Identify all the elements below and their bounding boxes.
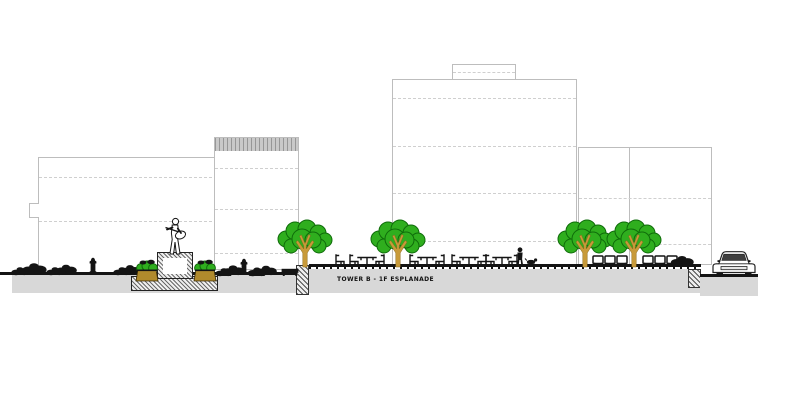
tree: [558, 220, 612, 267]
statue-guitarist: [166, 218, 187, 254]
cafe-chair: [486, 255, 494, 266]
dog: [525, 258, 537, 266]
cube-seat: [617, 256, 627, 266]
cafe-chair: [376, 255, 384, 266]
shrub: [56, 265, 77, 274]
cafe-table: [493, 258, 511, 267]
entourage-layer: [0, 0, 800, 414]
fire-hydrant-icon: [89, 258, 97, 274]
fire-hydrant-icon: [240, 259, 248, 275]
tree: [278, 220, 332, 267]
cafe-chair: [478, 255, 486, 266]
cube-seat: [643, 256, 653, 266]
parked-car: [713, 252, 755, 277]
planter: [194, 260, 216, 281]
cafe-chair: [452, 255, 460, 266]
shrub: [22, 263, 47, 274]
shrub: [256, 266, 277, 275]
elevation-drawing: TOWER B - 1F ESPLANADE: [0, 0, 800, 414]
planter: [136, 260, 158, 281]
cube-seat: [593, 256, 603, 266]
tree: [371, 220, 425, 267]
cafe-table: [460, 258, 478, 267]
cafe-chair: [436, 255, 444, 266]
cafe-table: [418, 258, 436, 267]
cube-seat: [655, 256, 665, 266]
cafe-chair: [336, 255, 344, 266]
cafe-table: [358, 258, 376, 267]
cafe-chair: [509, 255, 517, 266]
cafe-chair: [410, 255, 418, 266]
bench: [282, 269, 299, 276]
cafe-chair: [350, 255, 358, 266]
cube-seat: [605, 256, 615, 266]
pedestrian: [517, 247, 523, 266]
